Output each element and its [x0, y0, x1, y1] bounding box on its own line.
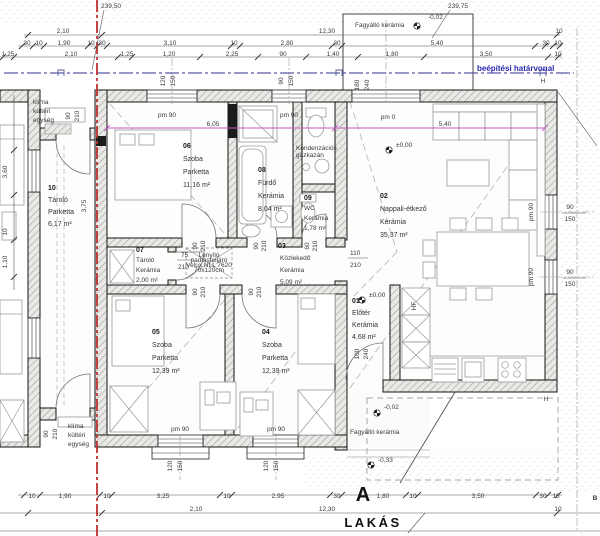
hob [498, 358, 526, 382]
dim-label: 90 [566, 269, 574, 276]
dim-label: 100 [354, 348, 361, 359]
svg-text:WC: WC [304, 205, 315, 212]
dim-label: 2,10 [65, 51, 78, 58]
dim-label: Fagyálló kerámia [350, 429, 400, 436]
dim-label: -0,02 [428, 14, 443, 21]
dim-label: 10 [554, 40, 562, 47]
dim-label: 30 [539, 493, 547, 500]
dim-label: 90 [279, 51, 287, 58]
dim-label: klíma [68, 423, 84, 430]
svg-text:Parketta: Parketta [183, 169, 209, 176]
svg-text:Parketta: Parketta [48, 209, 74, 216]
dim-label: 3,25 [157, 493, 170, 500]
dim-label: ±0,00 [369, 292, 386, 299]
svg-text:Kerámia: Kerámia [352, 322, 378, 329]
dim-label: pm 0 [381, 114, 396, 121]
dim-label: 1,25 [2, 51, 15, 58]
svg-text:07: 07 [136, 247, 144, 254]
dishwasher [432, 358, 458, 382]
svg-text:6,17 m²: 6,17 m² [48, 221, 72, 228]
dim-label: 30 [23, 40, 31, 47]
svg-text:06: 06 [183, 143, 191, 150]
dim-label: 2,95 [272, 493, 285, 500]
plan-title: LAKÁS [344, 515, 401, 530]
dim-label: -0,02 [384, 404, 399, 411]
dim-label: 2,25 [226, 51, 239, 58]
level-symbol [374, 410, 380, 416]
dim-label: 210 [200, 240, 207, 251]
dim-label: 90 [192, 288, 199, 296]
svg-text:8,04 m²: 8,04 m² [258, 206, 282, 213]
dim-label: 239,50 [101, 3, 121, 10]
neighbour-bed [0, 125, 24, 205]
svg-text:Közlekedő: Közlekedő [280, 255, 311, 262]
boiler [315, 159, 329, 173]
dim-label: 10 [554, 506, 562, 513]
dim-label: 3,50 [472, 493, 485, 500]
sofa [433, 104, 545, 112]
dim-label: pm 90 [528, 203, 535, 221]
dim-label: 120 [160, 75, 167, 86]
dim-label: 30 [333, 493, 341, 500]
dim-label: 10 [555, 28, 563, 35]
svg-text:08: 08 [258, 167, 266, 174]
svg-text:Tároló: Tároló [136, 257, 155, 264]
dim-label: kültéri [33, 108, 50, 115]
dim-label: 3,60 [2, 165, 9, 178]
dim-label: egység [68, 441, 89, 448]
svg-text:5,09 m²: 5,09 m² [280, 279, 303, 286]
floor-plan-page: 10TárolóParketta6,17 m² 06SzobaParketta1… [0, 0, 600, 536]
svg-text:Szoba: Szoba [262, 342, 282, 349]
svg-text:2,00 m²: 2,00 m² [136, 277, 159, 284]
svg-text:Nappali-étkező: Nappali-étkező [380, 206, 427, 213]
dim-label: 90 [253, 242, 260, 250]
svg-text:4,68 m²: 4,68 m² [352, 334, 376, 341]
dim-label: pm 90 [158, 112, 176, 119]
floor-plan-svg: 10TárolóParketta6,17 m² 06SzobaParketta1… [0, 0, 600, 536]
dim-label: 10 [409, 493, 417, 500]
svg-text:02: 02 [380, 193, 388, 200]
dim-label: 2,80 [281, 40, 294, 47]
svg-text:12,39 m²: 12,39 m² [152, 368, 180, 375]
dim-label: 10 [103, 493, 111, 500]
dim-label: 210 [261, 240, 268, 251]
dim-label: 2,10 [190, 506, 203, 513]
svg-text:12,39 m²: 12,39 m² [262, 368, 290, 375]
dim-label: 30 [333, 40, 341, 47]
dim-label: 2,10 [57, 28, 70, 35]
dim-label: 210 [256, 286, 263, 297]
dim-label: 10 [552, 493, 560, 500]
dim-label: 5,40 [439, 121, 452, 128]
svg-text:11,16 m²: 11,16 m² [183, 182, 211, 189]
dim-label: ±0,00 [396, 142, 413, 149]
dim-label: H [544, 396, 549, 403]
dim-label: 239,75 [448, 3, 468, 10]
level-symbol [368, 462, 374, 468]
dim-label: pm 90 [528, 268, 535, 286]
desk-room05 [200, 382, 236, 430]
dim-label: 150 [565, 281, 576, 288]
dim-label: 150 [170, 75, 177, 86]
svg-text:35,37 m²: 35,37 m² [380, 232, 408, 239]
dim-label: gázkazán [296, 152, 324, 159]
level-symbol [414, 23, 420, 29]
dim-label: 3,10 [164, 40, 177, 47]
dim-label: pm 90 [280, 112, 298, 119]
vent-shaft [228, 104, 237, 138]
dim-label: 210 [52, 428, 59, 439]
dim-label: 90 [192, 242, 199, 250]
dim-label: -0,33 [378, 457, 393, 464]
dim-label: 90 [278, 77, 285, 85]
svg-text:Előtér: Előtér [352, 310, 371, 317]
svg-text:03: 03 [278, 243, 286, 250]
dim-label: 150 [288, 75, 295, 86]
svg-text:Szoba: Szoba [152, 342, 172, 349]
dim-label: 10 [554, 51, 562, 58]
dim-label: 10 [35, 40, 43, 47]
dim-label: 3,75 [81, 199, 88, 212]
dim-label: 30 [542, 40, 550, 47]
dim-label: kültéri [68, 432, 85, 439]
dim-label: 10 [223, 493, 231, 500]
svg-text:Parketta: Parketta [262, 355, 288, 362]
dim-label: 150 [177, 460, 184, 471]
dim-label: 180 [354, 79, 361, 90]
svg-text:05: 05 [152, 329, 160, 336]
dim-label: klíma [33, 99, 49, 106]
level-symbol [386, 147, 392, 153]
dim-label: 5,40 [431, 40, 444, 47]
dim-label: H [541, 78, 546, 85]
svg-text:Szoba: Szoba [183, 156, 203, 163]
dim-label: Kondenzációs [296, 145, 338, 152]
dim-label: 1,80 [386, 51, 399, 58]
coffee-table [447, 160, 489, 186]
dim-label: 6,05 [207, 121, 220, 128]
svg-text:Kerámia: Kerámia [380, 219, 406, 226]
dim-label: 70x120cm [194, 267, 224, 274]
dim-label: Fagyálló kerámia [355, 22, 405, 29]
dim-label: 210 [312, 240, 319, 251]
dim-label: 120 [263, 460, 270, 471]
dim-label: 1,80 [377, 493, 390, 500]
dim-label: 90 [566, 204, 574, 211]
dim-label: 1,20 [163, 51, 176, 58]
dim-label: 1,90 [59, 493, 72, 500]
dim-label: 12,30 [319, 28, 336, 35]
dim-label: pm 90 [171, 426, 189, 433]
dim-label: 10 [28, 493, 36, 500]
dim-label: 1,90 [58, 40, 71, 47]
dim-label: 90 [43, 430, 50, 438]
svg-text:04: 04 [262, 329, 270, 336]
washbasin [242, 225, 260, 237]
svg-text:Fürdő: Fürdő [258, 180, 276, 187]
dim-label: 60 [304, 242, 311, 250]
dining-table [437, 232, 529, 286]
dim-label: 110 [350, 250, 361, 257]
svg-text:01: 01 [352, 298, 360, 305]
dim-label: 150 [273, 460, 280, 471]
dim-label: 210 [200, 286, 207, 297]
svg-text:Kerámia: Kerámia [258, 193, 284, 200]
dim-label: 210 [350, 262, 361, 269]
dim-label: 12,30 [319, 506, 336, 513]
dim-label: 1,25 [121, 51, 134, 58]
dim-label: 10 [2, 228, 9, 236]
dim-label: 210 [74, 110, 81, 121]
dim-label: 3,50 [480, 51, 493, 58]
svg-text:1,78 m²: 1,78 m² [304, 225, 327, 232]
boundary-line-label: beépítési határvonal [477, 64, 554, 73]
dim-label: 1,10 [2, 255, 9, 268]
dim-label: 75 [181, 252, 189, 259]
svg-text:Kerámia: Kerámia [280, 267, 305, 274]
dim-label: pm 90 [267, 426, 285, 433]
dim-label: 10 [230, 40, 238, 47]
svg-text:Tároló: Tároló [48, 197, 68, 204]
dim-label: 120 [167, 460, 174, 471]
dim-label: 150 [565, 216, 576, 223]
section-marker-a: A [356, 484, 370, 506]
dim-label: 30 [98, 40, 106, 47]
dim-label: 1,40 [327, 51, 340, 58]
svg-text:10: 10 [48, 185, 56, 192]
dim-label: egység [33, 117, 54, 124]
dim-label: 10 [87, 40, 95, 47]
svg-text:Kerámia: Kerámia [136, 267, 161, 274]
dim-label: 240 [363, 348, 370, 359]
svg-text:09: 09 [304, 195, 312, 202]
dim-label: B [593, 495, 598, 502]
dim-label: HF [411, 302, 418, 311]
svg-text:Parketta: Parketta [152, 355, 178, 362]
dim-label: 90 [248, 288, 255, 296]
dim-label: 240 [364, 79, 371, 90]
dim-label: 90 [65, 112, 72, 120]
svg-text:Kerámia: Kerámia [304, 215, 329, 222]
